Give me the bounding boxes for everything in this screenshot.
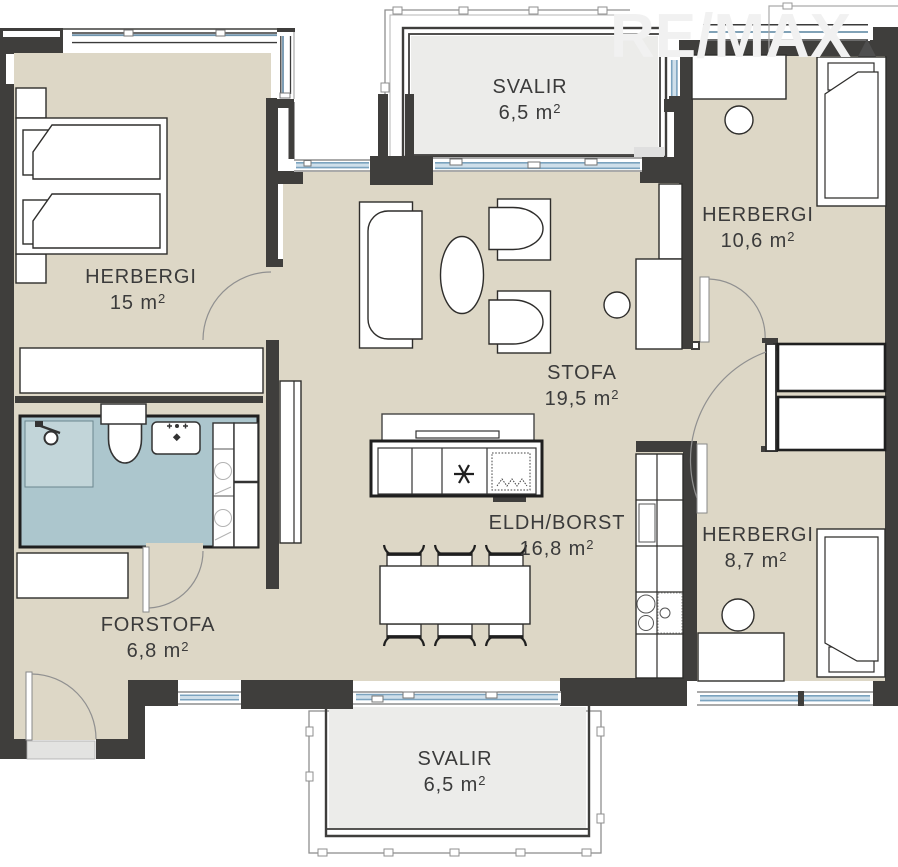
svg-text:10,6 m2: 10,6 m2 xyxy=(721,229,796,252)
svg-text:19,5 m2: 19,5 m2 xyxy=(545,387,620,410)
svg-text:6,8 m2: 6,8 m2 xyxy=(127,639,190,662)
svg-text:6,5 m2: 6,5 m2 xyxy=(424,773,487,796)
svg-text:STOFA: STOFA xyxy=(547,362,617,384)
svg-text:HERBERGI: HERBERGI xyxy=(702,524,814,546)
svg-text:SVALIR: SVALIR xyxy=(417,748,492,770)
svg-text:ELDH/BORST: ELDH/BORST xyxy=(489,512,626,534)
svg-text:16,8 m2: 16,8 m2 xyxy=(520,537,595,560)
svg-text:8,7 m2: 8,7 m2 xyxy=(725,549,788,572)
svg-text:15 m2: 15 m2 xyxy=(110,291,166,314)
svg-text:HERBERGI: HERBERGI xyxy=(85,266,197,288)
svg-text:FORSTOFA: FORSTOFA xyxy=(101,614,216,636)
svg-text:SVALIR: SVALIR xyxy=(492,76,567,98)
svg-text:RE/MAX: RE/MAX xyxy=(610,2,851,71)
svg-text:HERBERGI: HERBERGI xyxy=(702,204,814,226)
svg-text:6,5 m2: 6,5 m2 xyxy=(499,101,562,124)
